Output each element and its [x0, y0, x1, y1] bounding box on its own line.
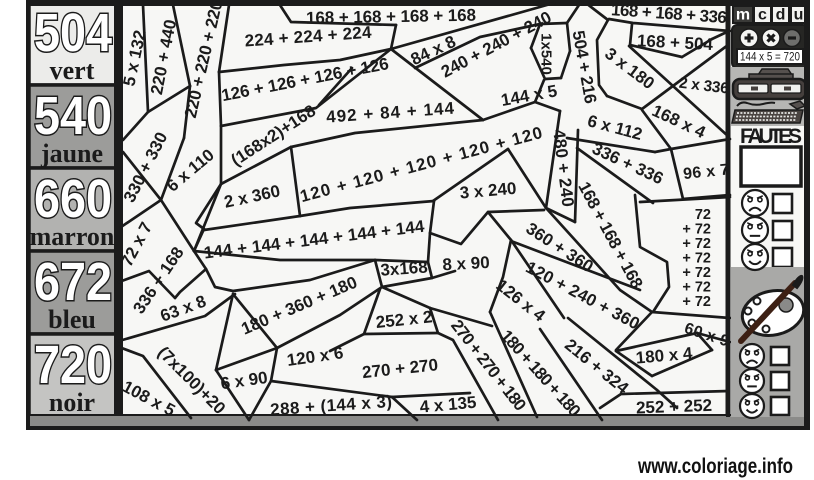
svg-text:d: d: [776, 7, 786, 24]
svg-text:jaune: jaune: [40, 139, 103, 168]
svg-text:504: 504: [34, 3, 112, 63]
svg-text:FAUTES: FAUTES: [740, 125, 802, 148]
svg-text:540: 540: [34, 86, 112, 146]
svg-text:vert: vert: [50, 56, 95, 85]
svg-text:168 + 168 + 168 + 168: 168 + 168 + 168 + 168: [306, 6, 476, 28]
svg-text:672: 672: [34, 252, 112, 312]
svg-text:noir: noir: [49, 388, 95, 417]
svg-text:1x540: 1x540: [538, 33, 555, 75]
svg-text:8 x 90: 8 x 90: [442, 253, 490, 274]
svg-text:+ 72: + 72: [682, 294, 711, 310]
svg-text:252 + 252: 252 + 252: [636, 396, 713, 418]
svg-text:marron: marron: [30, 222, 115, 251]
svg-text:144 x 5 = 720: 144 x 5 = 720: [740, 52, 800, 64]
svg-text:660: 660: [34, 169, 112, 229]
svg-text:www.coloriage.info: www.coloriage.info: [637, 455, 793, 478]
svg-text:c: c: [758, 7, 767, 24]
svg-text:bleu: bleu: [48, 305, 96, 334]
svg-text:u: u: [794, 7, 804, 24]
svg-text:168 + 504: 168 + 504: [637, 31, 714, 54]
svg-text:3x168: 3x168: [380, 257, 428, 279]
svg-text:m: m: [736, 7, 750, 24]
svg-text:720: 720: [34, 335, 112, 395]
